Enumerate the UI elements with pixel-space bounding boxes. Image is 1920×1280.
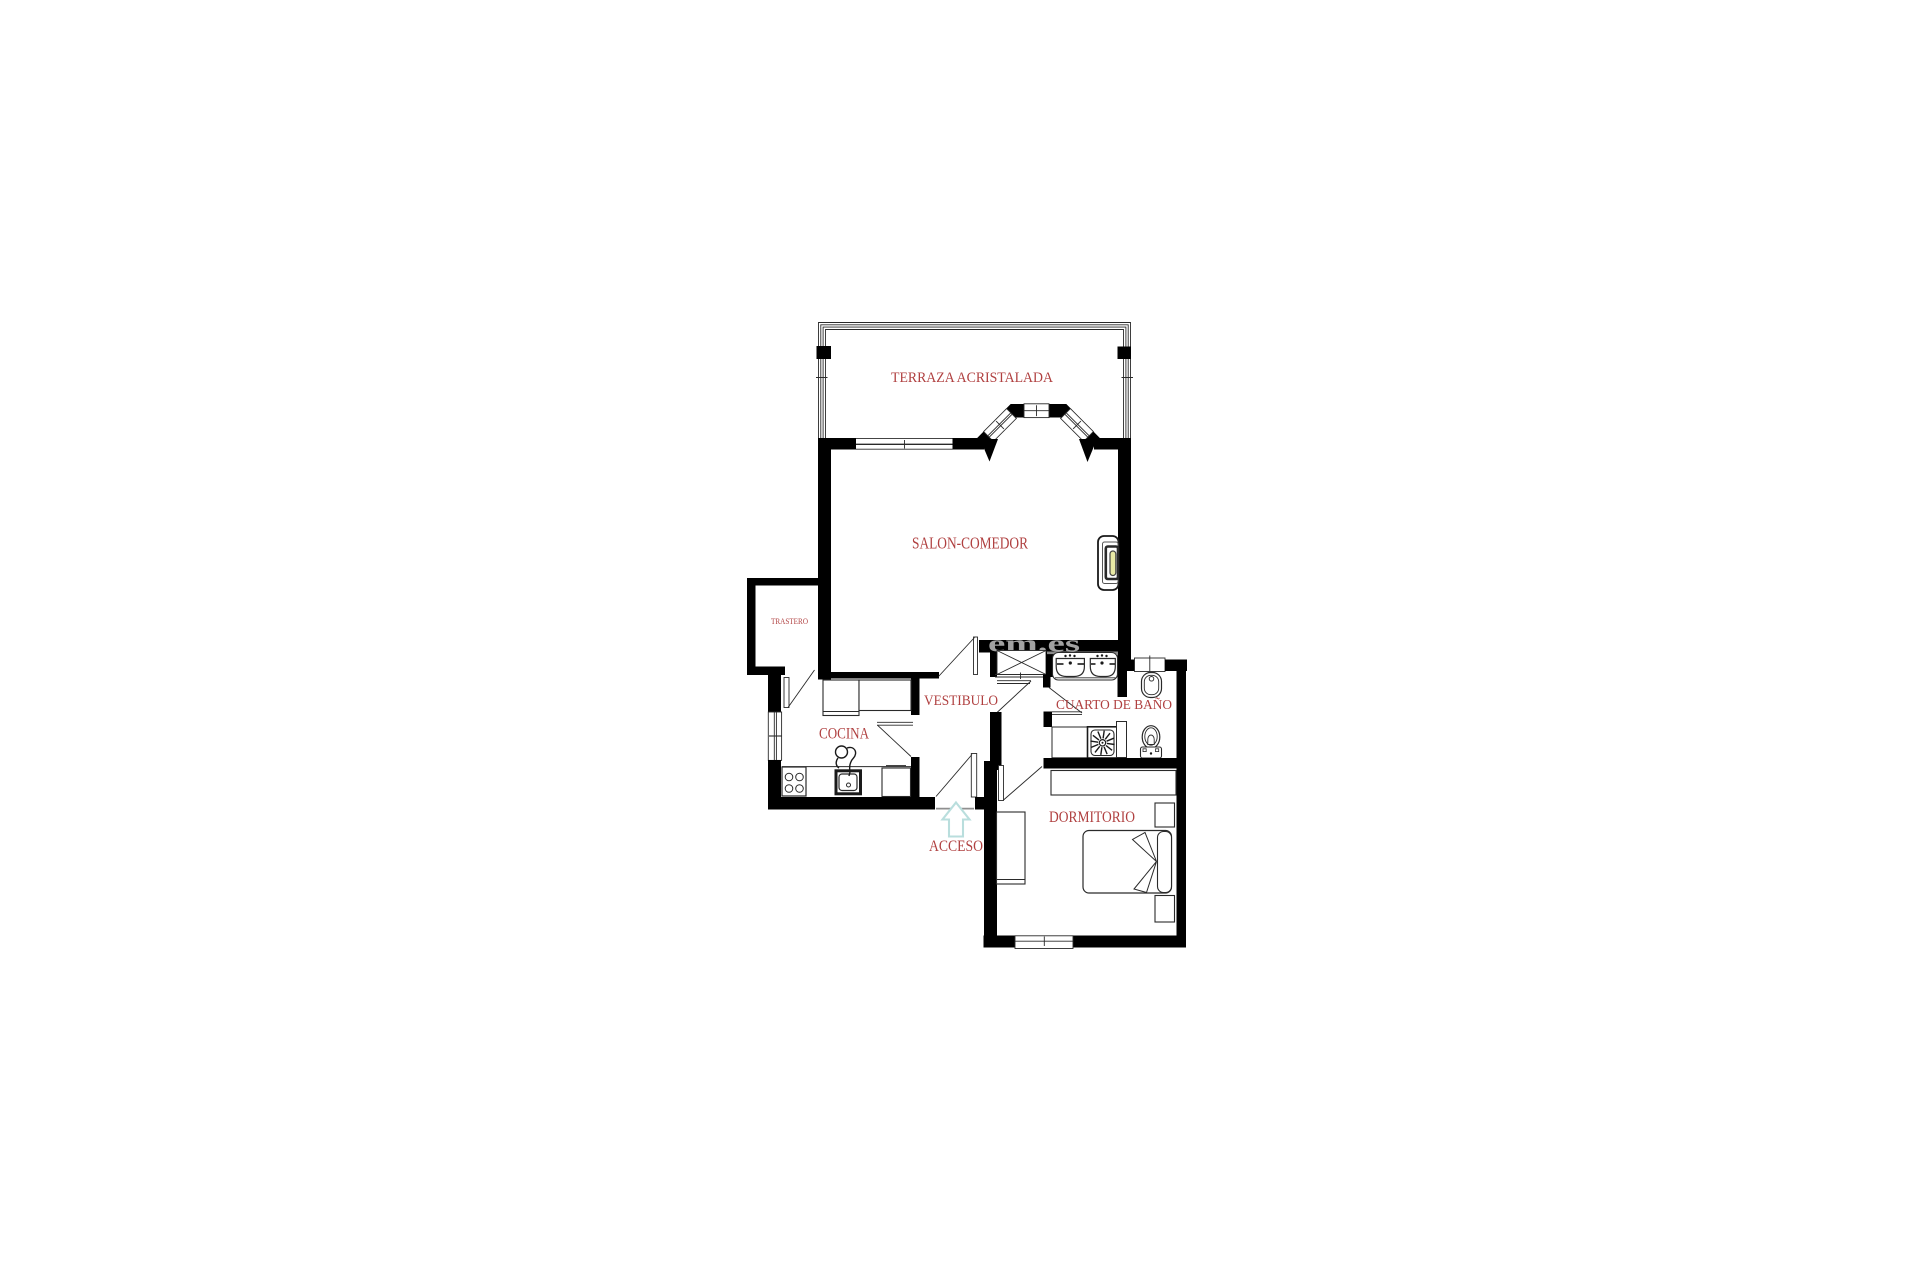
svg-text:DORMITORIO: DORMITORIO [1049, 809, 1135, 826]
svg-text:VESTIBULO: VESTIBULO [924, 693, 998, 709]
svg-text:COCINA: COCINA [819, 726, 870, 743]
svg-text:CUARTO DE BAÑO: CUARTO DE BAÑO [1056, 697, 1172, 713]
svg-text:ACCESO: ACCESO [929, 838, 983, 855]
svg-text:SALON-COMEDOR: SALON-COMEDOR [912, 534, 1028, 553]
svg-text:TRASTERO: TRASTERO [771, 616, 808, 626]
svg-text:TERRAZA ACRISTALADA: TERRAZA ACRISTALADA [891, 370, 1053, 386]
